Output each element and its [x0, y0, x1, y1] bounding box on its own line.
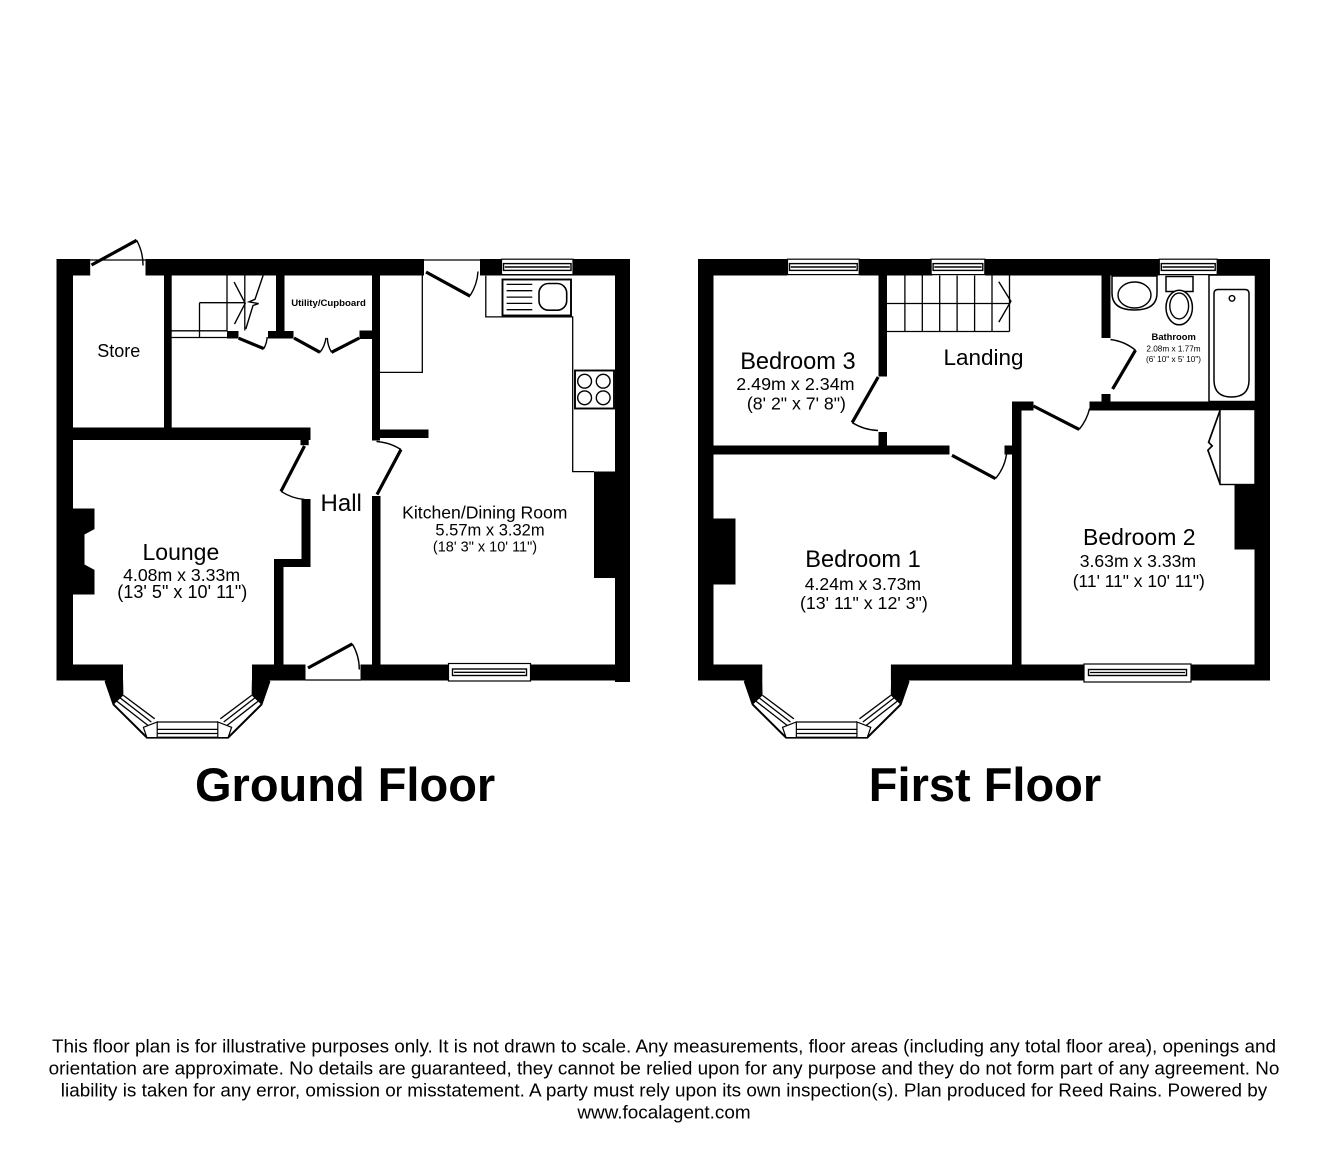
svg-text:Hall: Hall: [321, 490, 362, 517]
svg-text:5.57m x 3.32m: 5.57m x 3.32m: [435, 522, 544, 540]
svg-text:Bedroom 1: Bedroom 1: [805, 547, 920, 573]
svg-text:Bedroom 3: Bedroom 3: [740, 349, 855, 375]
svg-text:Bathroom: Bathroom: [1152, 331, 1196, 342]
svg-text:2.49m x 2.34m: 2.49m x 2.34m: [736, 374, 854, 394]
svg-text:Landing: Landing: [943, 345, 1023, 370]
svg-text:www.focalagent.com: www.focalagent.com: [576, 1103, 750, 1124]
svg-text:(18' 3" x 10' 11"): (18' 3" x 10' 11"): [433, 540, 537, 556]
svg-text:Utility/Cupboard: Utility/Cupboard: [291, 298, 366, 309]
svg-text:2.08m x 1.77m: 2.08m x 1.77m: [1146, 345, 1200, 354]
svg-text:(11' 11" x 10' 11"): (11' 11" x 10' 11"): [1073, 571, 1205, 591]
svg-text:First Floor: First Floor: [869, 758, 1101, 811]
svg-text:Ground Floor: Ground Floor: [195, 758, 495, 811]
svg-text:Bedroom 2: Bedroom 2: [1083, 524, 1196, 550]
svg-text:orientation are approximate. N: orientation are approximate. No details …: [49, 1059, 1280, 1080]
svg-text:(13' 5" x 10' 11"): (13' 5" x 10' 11"): [117, 582, 247, 602]
svg-text:liability is taken for any err: liability is taken for any error, omissi…: [61, 1081, 1268, 1102]
svg-text:(13' 11" x 12' 3"): (13' 11" x 12' 3"): [800, 593, 928, 613]
svg-text:Kitchen/Dining Room: Kitchen/Dining Room: [402, 503, 567, 523]
svg-text:This floor plan is for illustr: This floor plan is for illustrative purp…: [52, 1037, 1276, 1058]
svg-text:4.24m x 3.73m: 4.24m x 3.73m: [805, 574, 921, 594]
svg-text:Lounge: Lounge: [143, 539, 220, 565]
svg-text:Store: Store: [97, 341, 140, 361]
svg-text:3.63m x 3.33m: 3.63m x 3.33m: [1080, 551, 1196, 571]
svg-text:(8' 2" x 7' 8"): (8' 2" x 7' 8"): [747, 394, 846, 414]
svg-text:(6' 10" x 5' 10"): (6' 10" x 5' 10"): [1146, 355, 1201, 364]
